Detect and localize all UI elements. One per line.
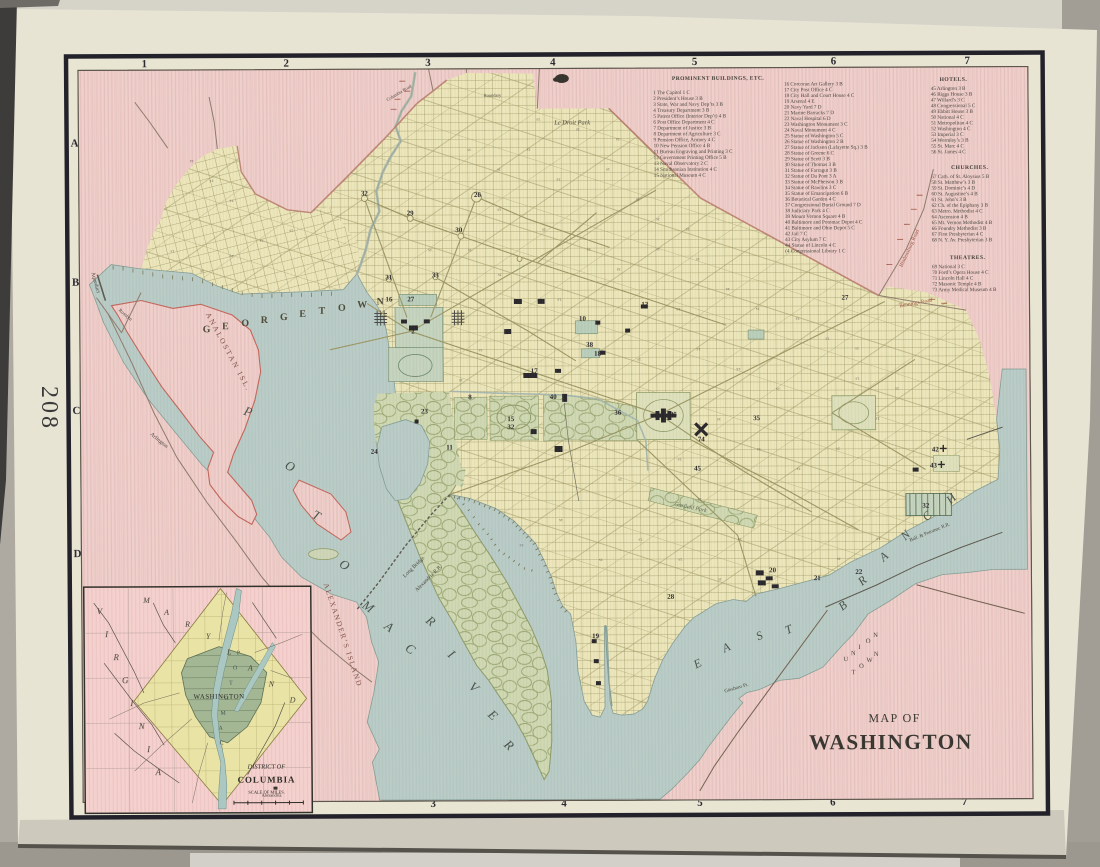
svg-text:2: 2 [283, 58, 289, 70]
svg-text:C: C [220, 741, 224, 747]
svg-text:L: L [226, 648, 232, 657]
svg-text:A: A [247, 664, 253, 673]
svg-text:M: M [220, 711, 226, 717]
svg-text:N: N [268, 679, 275, 688]
svg-text:DISTRICT OF: DISTRICT OF [247, 764, 286, 771]
svg-text:7: 7 [964, 55, 970, 67]
svg-text:WASHINGTON: WASHINGTON [194, 693, 245, 701]
svg-text:Alexandria: Alexandria [262, 793, 282, 798]
svg-text:M: M [142, 596, 150, 605]
svg-text:COLUMBIA: COLUMBIA [238, 774, 296, 784]
svg-text:D: D [289, 695, 296, 704]
svg-text:D: D [74, 548, 82, 560]
svg-text:O: O [224, 696, 229, 702]
svg-text:N: N [138, 721, 146, 731]
svg-text:R: R [184, 620, 190, 629]
svg-text:A: A [71, 138, 79, 150]
svg-text:4: 4 [550, 56, 556, 68]
svg-text:C: C [72, 405, 80, 417]
svg-text:A: A [163, 608, 169, 617]
svg-text:A: A [219, 726, 224, 732]
svg-text:O: O [233, 666, 238, 672]
svg-text:1: 1 [142, 58, 148, 70]
svg-text:A: A [154, 767, 161, 777]
svg-text:T: T [229, 681, 233, 687]
svg-text:5: 5 [692, 56, 698, 68]
svg-text:208: 208 [36, 386, 62, 431]
svg-text:3: 3 [425, 57, 431, 69]
svg-text:6: 6 [831, 55, 837, 67]
svg-text:R: R [113, 652, 120, 662]
svg-text:B: B [72, 277, 79, 289]
svg-text:G: G [122, 675, 129, 685]
